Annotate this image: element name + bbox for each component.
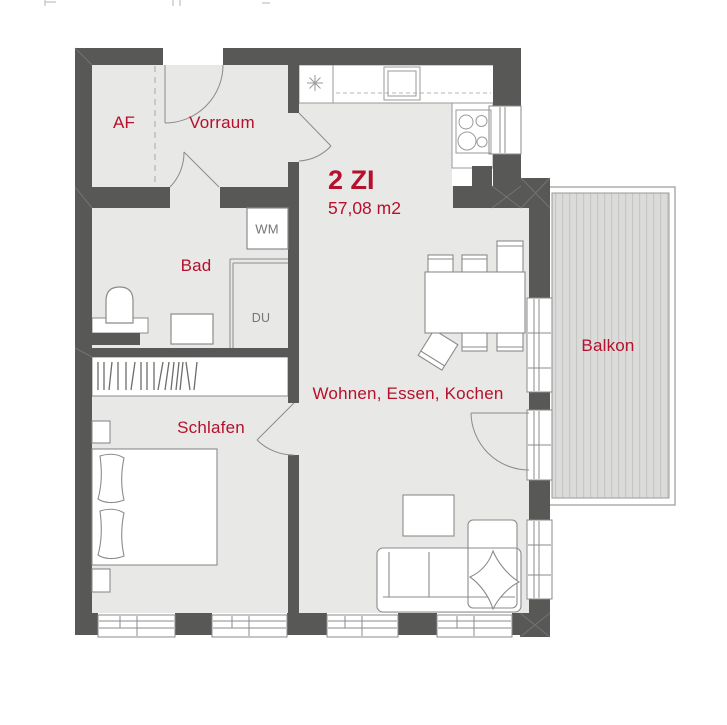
- wardrobe: [92, 357, 288, 396]
- balcony: [542, 187, 675, 505]
- floor-plan-drawing: [0, 0, 727, 725]
- wall-top-left: [75, 48, 163, 65]
- wall-kitchen-shaft: [472, 166, 492, 186]
- wall-bottom-3: [287, 613, 327, 635]
- wall-right-seg2: [529, 598, 550, 613]
- window-bottom-4: [437, 615, 512, 637]
- wall-kitchen-bar: [453, 186, 521, 208]
- dining-set: [418, 241, 525, 370]
- coffee-table: [403, 495, 454, 536]
- wall-top-right: [223, 48, 521, 65]
- pillow-2: [98, 509, 124, 558]
- wall-right-pier2: [529, 478, 550, 522]
- window-bottom-1: [98, 615, 175, 637]
- living-window-lower: [527, 520, 552, 599]
- wall-bottom-5: [512, 613, 522, 635]
- wall-bad-bottom: [92, 348, 299, 357]
- kitchen-window: [489, 106, 521, 154]
- floor-plan: AF Vorraum Bad Schlafen Wohnen, Essen, K…: [0, 0, 727, 725]
- nightstand-bottom: [92, 569, 110, 592]
- dining-chair-2: [462, 255, 487, 274]
- bathroom-sink: [171, 314, 213, 344]
- dining-chair-4: [462, 331, 487, 351]
- wall-vorraum-left: [92, 187, 170, 208]
- dining-chair-5: [497, 331, 523, 351]
- window-bottom-2: [212, 615, 287, 637]
- balcony-door-glazing: [527, 410, 552, 480]
- living-window-upper: [527, 298, 552, 392]
- washing-machine: [247, 208, 288, 249]
- dining-chair-1: [428, 255, 453, 274]
- dining-table: [425, 272, 525, 333]
- wall-right-upper-b: [493, 152, 521, 186]
- dimension-ticks: [45, 0, 270, 6]
- wall-toilet-side: [92, 333, 140, 345]
- wall-bad-right: [288, 208, 299, 357]
- balcony-deck: [552, 193, 669, 498]
- window-bottom-3: [327, 615, 398, 637]
- wall-bottom-4: [398, 613, 437, 635]
- wall-schlafen-top: [288, 357, 299, 403]
- toilet: [106, 287, 133, 323]
- wall-vorraum-right: [220, 187, 299, 208]
- nightstand-top: [92, 421, 110, 443]
- wall-right-upper-a: [493, 65, 521, 108]
- wall-left: [75, 48, 92, 635]
- kitchen-counter-side: [452, 103, 493, 168]
- wall-right-seg1: [529, 208, 550, 300]
- wall-bottom-1: [75, 613, 98, 635]
- wall-vert-mid: [288, 162, 299, 208]
- dining-chair-3: [497, 241, 523, 273]
- wall-bottom-2: [175, 613, 212, 635]
- wall-right-pier1: [529, 392, 550, 412]
- pillow-1: [98, 454, 124, 502]
- wall-vert-top: [288, 65, 299, 113]
- wall-schlafen-bottom: [288, 455, 299, 613]
